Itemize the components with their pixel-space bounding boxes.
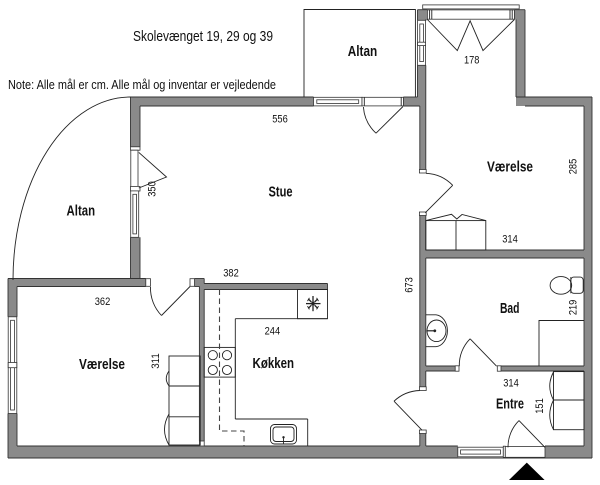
svg-text:314: 314 [502,233,518,245]
svg-text:Altan: Altan [67,203,96,220]
svg-text:151: 151 [534,398,546,414]
svg-text:Bad: Bad [500,300,520,317]
svg-text:219: 219 [567,300,579,316]
svg-text:311: 311 [150,353,162,369]
svg-text:178: 178 [464,54,480,66]
svg-text:Værelse: Værelse [487,159,533,176]
svg-text:350: 350 [147,181,159,197]
svg-text:673: 673 [403,277,415,293]
svg-text:Skolevænget 19, 29 og 39: Skolevænget 19, 29 og 39 [133,29,273,45]
svg-text:285: 285 [568,159,580,175]
svg-text:382: 382 [223,268,239,280]
svg-text:Stue: Stue [269,184,293,201]
svg-text:314: 314 [503,378,519,390]
svg-text:Køkken: Køkken [253,355,295,372]
svg-text:Entre: Entre [496,396,524,413]
svg-text:244: 244 [265,326,281,338]
svg-text:556: 556 [272,114,288,126]
svg-text:Værelse: Værelse [79,356,125,373]
svg-text:362: 362 [95,296,111,308]
svg-text:Altan: Altan [348,43,378,60]
svg-text:Note: Alle mål er cm. Alle mål: Note: Alle mål er cm. Alle mål og invent… [8,77,276,92]
